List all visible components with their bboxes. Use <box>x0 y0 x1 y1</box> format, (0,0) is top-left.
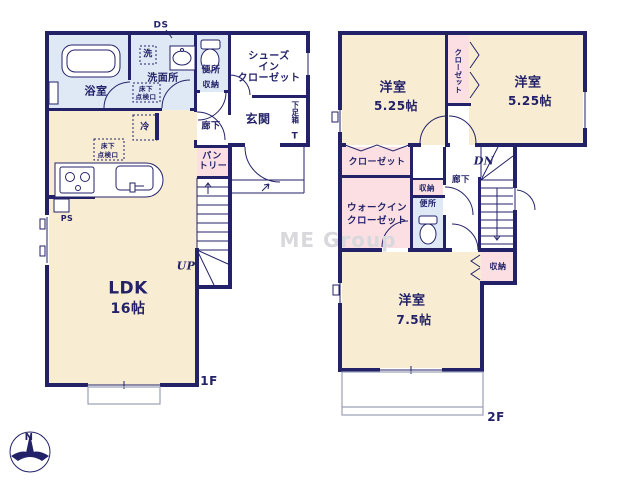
floor2-label: 2F <box>487 411 505 423</box>
room-label-shoes-closet: シューズ <box>248 52 290 62</box>
hatch-label: 床下 <box>139 86 153 93</box>
kitchen-counter-icon <box>55 163 163 197</box>
room-label-shoes-closet: イン <box>259 63 280 73</box>
toilet-2f-icon <box>419 216 437 244</box>
room-label-pantry: トリー <box>199 163 228 172</box>
ps-label: PS <box>61 215 74 223</box>
room-label-hallway-2f: 廊下 <box>452 176 470 185</box>
storage-label-upper-2f: 収納 <box>419 184 435 192</box>
hatch-label: 床下 <box>101 143 115 150</box>
room-fills <box>49 35 583 385</box>
room-label-entrance: 玄関 <box>245 113 270 125</box>
washbasin-icon <box>170 46 195 70</box>
closet-label: クローゼット <box>348 159 405 168</box>
shoe-box-label: 下足箱 <box>291 101 299 124</box>
floorplan: DS 浴室 洗面所 洗 床下 点検口 便所 収納 シューズ イン クローゼット … <box>0 0 640 480</box>
room-label-bedroom3: 洋室 <box>398 295 425 308</box>
room-label-shoes-closet: クローゼット <box>238 74 301 84</box>
storage-label: 収納 <box>203 81 220 89</box>
shoe-box-t-label: T <box>292 133 299 142</box>
room-label-bedroom1: 洋室 <box>379 82 406 95</box>
stairs-1f <box>197 178 228 285</box>
room-size-bedroom3: 7.5帖 <box>396 314 431 326</box>
room-label-washroom: 洗面所 <box>147 74 179 84</box>
stairs-up-label: UP <box>177 261 196 272</box>
stairs-dn-label: DN <box>474 156 495 167</box>
laundry-label: 洗 <box>143 51 153 60</box>
room-label-hallway-1f: 廊下 <box>201 123 220 132</box>
walkin-closet-label: クローゼット <box>347 216 407 226</box>
room-label-toilet-1f: 便所 <box>201 67 220 76</box>
pipe-space-box <box>54 199 69 212</box>
floor1-label: 1F <box>200 375 218 387</box>
storage-label-lower-2f: 収納 <box>490 263 507 271</box>
room-label-bedroom2: 洋室 <box>514 77 541 90</box>
ds-label: DS <box>154 22 169 31</box>
compass-north-label: N <box>25 433 34 443</box>
room-label-pantry: パン <box>202 153 221 162</box>
room-label-ldk: LDK <box>108 281 148 298</box>
balcony-2f <box>342 372 483 415</box>
hatch-label: 点検口 <box>98 152 119 159</box>
room-size-ldk: 16帖 <box>111 302 146 316</box>
hatch-label: 点検口 <box>136 94 157 101</box>
room-size-bedroom1: 5.25帖 <box>374 100 418 112</box>
room-size-bedroom2: 5.25帖 <box>508 95 552 107</box>
closet-label-vertical: クローゼット <box>454 49 462 94</box>
entrance-porch <box>232 147 304 193</box>
terrace-1f <box>88 387 160 404</box>
room-label-toilet-2f: 便所 <box>420 200 437 208</box>
room-label-bath: 浴室 <box>85 86 108 97</box>
watermark: ME Group <box>279 228 396 252</box>
fridge-label: 冷 <box>140 124 150 133</box>
walkin-closet-label: ウォークイン <box>347 203 407 213</box>
